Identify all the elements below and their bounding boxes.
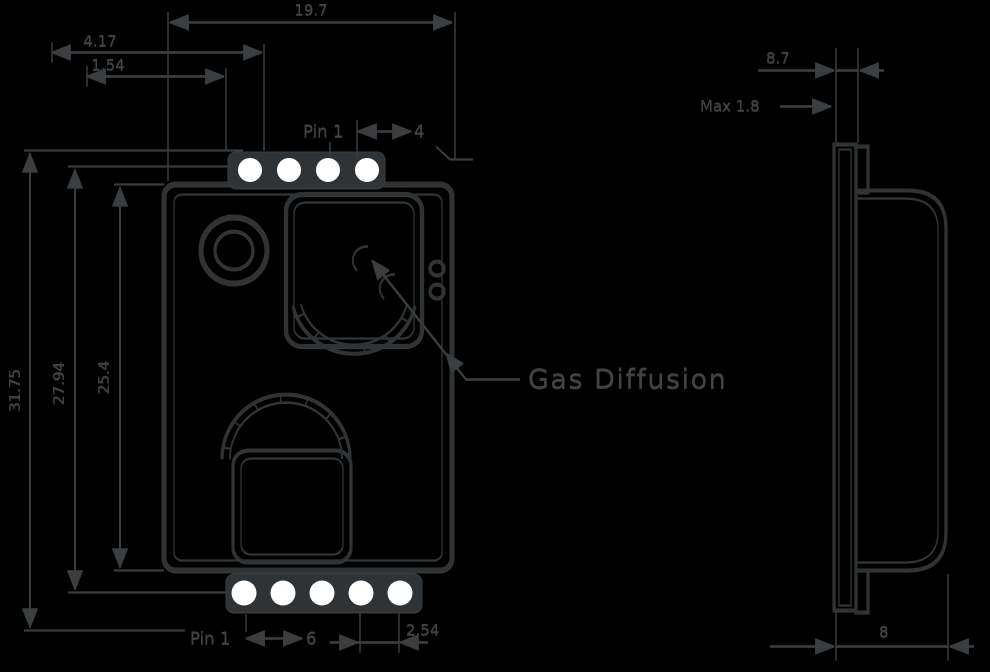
side-dimensions: 8.7 Max 1.8 8 bbox=[700, 48, 974, 660]
pin-hole bbox=[238, 158, 262, 182]
pin-hole bbox=[349, 581, 374, 606]
side-panel-outline bbox=[856, 190, 946, 570]
circular-port-inner bbox=[215, 231, 253, 269]
overall-width-label: 19.7 bbox=[294, 1, 327, 19]
pin-hole bbox=[277, 158, 301, 182]
pin-hole bbox=[232, 581, 257, 606]
lower-opening-outline bbox=[233, 450, 351, 562]
top-pin-last-label: 4 bbox=[414, 122, 425, 141]
overall-height-label: 31.75 bbox=[6, 369, 24, 412]
body-height-label: 25.4 bbox=[95, 360, 113, 393]
side-top-lip bbox=[856, 146, 868, 192]
front-body-outline bbox=[164, 184, 452, 570]
small-diffusion-arc-1 bbox=[353, 246, 368, 270]
lip-max-label: Max 1.8 bbox=[700, 97, 760, 115]
body-depth-label: 8 bbox=[879, 623, 889, 641]
bottom-pin-label: Pin 1 bbox=[190, 629, 230, 648]
bottom-pin-last-label: 6 bbox=[306, 629, 317, 648]
pin-hole bbox=[271, 581, 296, 606]
pin-offset-2-label: 1.54 bbox=[91, 56, 124, 74]
side-body-outline bbox=[834, 144, 856, 610]
pin-hole bbox=[388, 581, 413, 606]
circular-port-outer bbox=[201, 217, 267, 283]
side-body-inner bbox=[839, 149, 851, 605]
pin-hole bbox=[316, 158, 340, 182]
gas-diffusion-leader bbox=[372, 260, 520, 379]
pin-hole bbox=[310, 581, 335, 606]
top-pin-label: Pin 1 bbox=[303, 122, 343, 141]
diffusion-window-inner bbox=[294, 202, 414, 338]
pin-hole bbox=[355, 158, 379, 182]
pin-span-height-label: 27.94 bbox=[50, 362, 68, 405]
pin-offset-label: 4.17 bbox=[83, 32, 116, 50]
depth-with-lip-label: 8.7 bbox=[766, 49, 790, 67]
side-view bbox=[834, 144, 946, 612]
gas-diffusion-annotation: Gas Diffusion bbox=[528, 364, 727, 395]
side-panel-inner bbox=[856, 198, 938, 562]
pin-pitch-label: 2.54 bbox=[406, 621, 439, 639]
front-view bbox=[164, 152, 452, 612]
side-bottom-tab bbox=[856, 570, 868, 612]
diffusion-window-outline bbox=[286, 194, 422, 346]
lower-opening-inner bbox=[241, 458, 343, 554]
technical-drawing: 19.7 4.17 1.54 31.75 27.94 25.4 Pin 1 4 … bbox=[0, 0, 990, 672]
lower-arch-outer bbox=[222, 394, 350, 458]
